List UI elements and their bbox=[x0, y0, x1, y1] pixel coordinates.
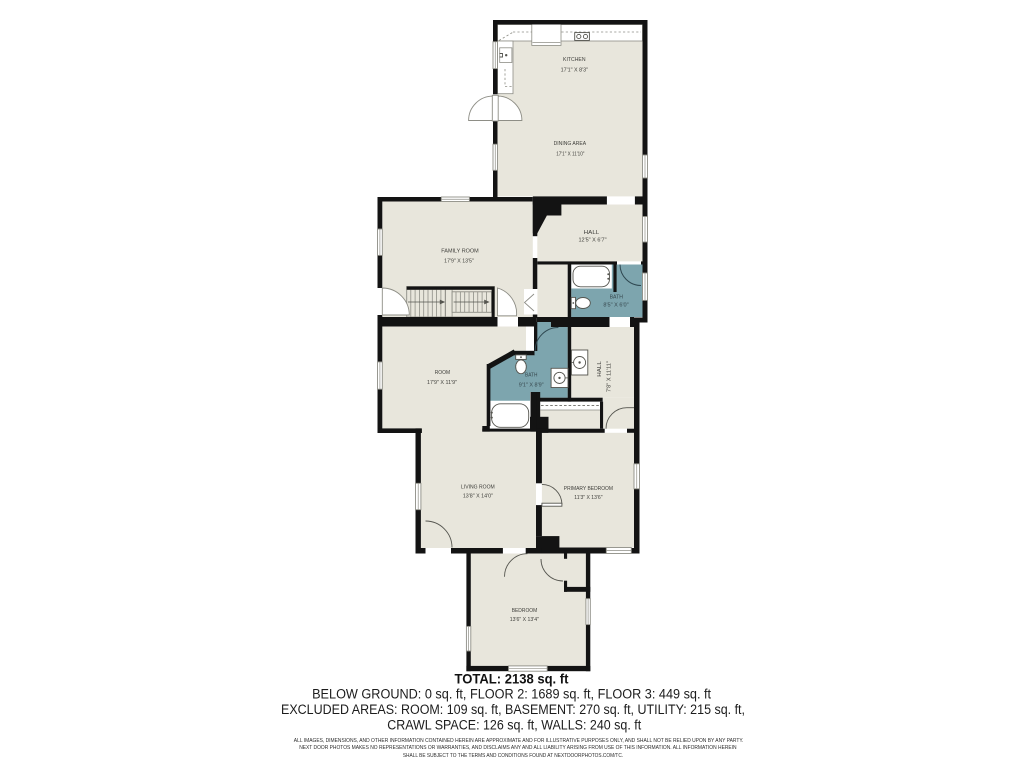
svg-text:13'6" X 13'4": 13'6" X 13'4" bbox=[510, 617, 539, 623]
svg-text:17'9" X 13'5": 17'9" X 13'5" bbox=[444, 259, 474, 265]
svg-text:KITCHEN: KITCHEN bbox=[563, 57, 586, 63]
svg-text:BATH: BATH bbox=[525, 373, 537, 379]
svg-text:9'1" X 8'9": 9'1" X 8'9" bbox=[519, 382, 544, 388]
svg-text:17'1" X 8'3": 17'1" X 8'3" bbox=[561, 68, 588, 74]
svg-text:BELOW GROUND: 0 sq. ft, FLOOR: BELOW GROUND: 0 sq. ft, FLOOR 2: 1689 sq… bbox=[312, 687, 711, 702]
svg-text:17'1" X 11'10": 17'1" X 11'10" bbox=[556, 151, 584, 157]
svg-text:SHALL BE SUBJECT TO THE TERMS: SHALL BE SUBJECT TO THE TERMS AND CONDIT… bbox=[403, 753, 623, 759]
svg-text:8'5" X 6'0": 8'5" X 6'0" bbox=[603, 302, 628, 308]
svg-text:BATH: BATH bbox=[610, 294, 623, 300]
svg-text:BEDROOM: BEDROOM bbox=[512, 608, 538, 614]
svg-text:17'9" X 11'9": 17'9" X 11'9" bbox=[427, 380, 457, 386]
svg-text:12'5" X 6'7": 12'5" X 6'7" bbox=[578, 237, 606, 243]
svg-text:HALL: HALL bbox=[597, 360, 603, 376]
svg-text:FAMILY ROOM: FAMILY ROOM bbox=[441, 248, 479, 254]
svg-text:ALL IMAGES, DIMENSIONS, AND OT: ALL IMAGES, DIMENSIONS, AND OTHER INFORM… bbox=[294, 738, 744, 744]
svg-text:7'8" X 11'11": 7'8" X 11'11" bbox=[607, 361, 613, 392]
svg-text:PRIMARY BEDROOM: PRIMARY BEDROOM bbox=[564, 486, 613, 492]
svg-text:CRAWL SPACE: 126 sq. ft, WALLS: CRAWL SPACE: 126 sq. ft, WALLS: 240 sq. … bbox=[387, 717, 641, 732]
svg-text:NEXT DOOR PHOTOS MAKES NO REPR: NEXT DOOR PHOTOS MAKES NO REPRESENTATION… bbox=[299, 745, 736, 751]
svg-text:LIVING ROOM: LIVING ROOM bbox=[461, 485, 495, 491]
svg-text:DINING AREA: DINING AREA bbox=[554, 141, 587, 147]
svg-text:13'8" X 14'0": 13'8" X 14'0" bbox=[463, 494, 493, 500]
svg-text:11'3" X 13'6": 11'3" X 13'6" bbox=[574, 495, 602, 501]
svg-text:EXCLUDED AREAS: ROOM: 109 sq.: EXCLUDED AREAS: ROOM: 109 sq. ft, BASEME… bbox=[281, 702, 745, 717]
svg-text:TOTAL: 2138 sq. ft: TOTAL: 2138 sq. ft bbox=[455, 671, 570, 686]
svg-text:ROOM: ROOM bbox=[435, 370, 451, 376]
svg-text:HALL: HALL bbox=[584, 230, 600, 236]
